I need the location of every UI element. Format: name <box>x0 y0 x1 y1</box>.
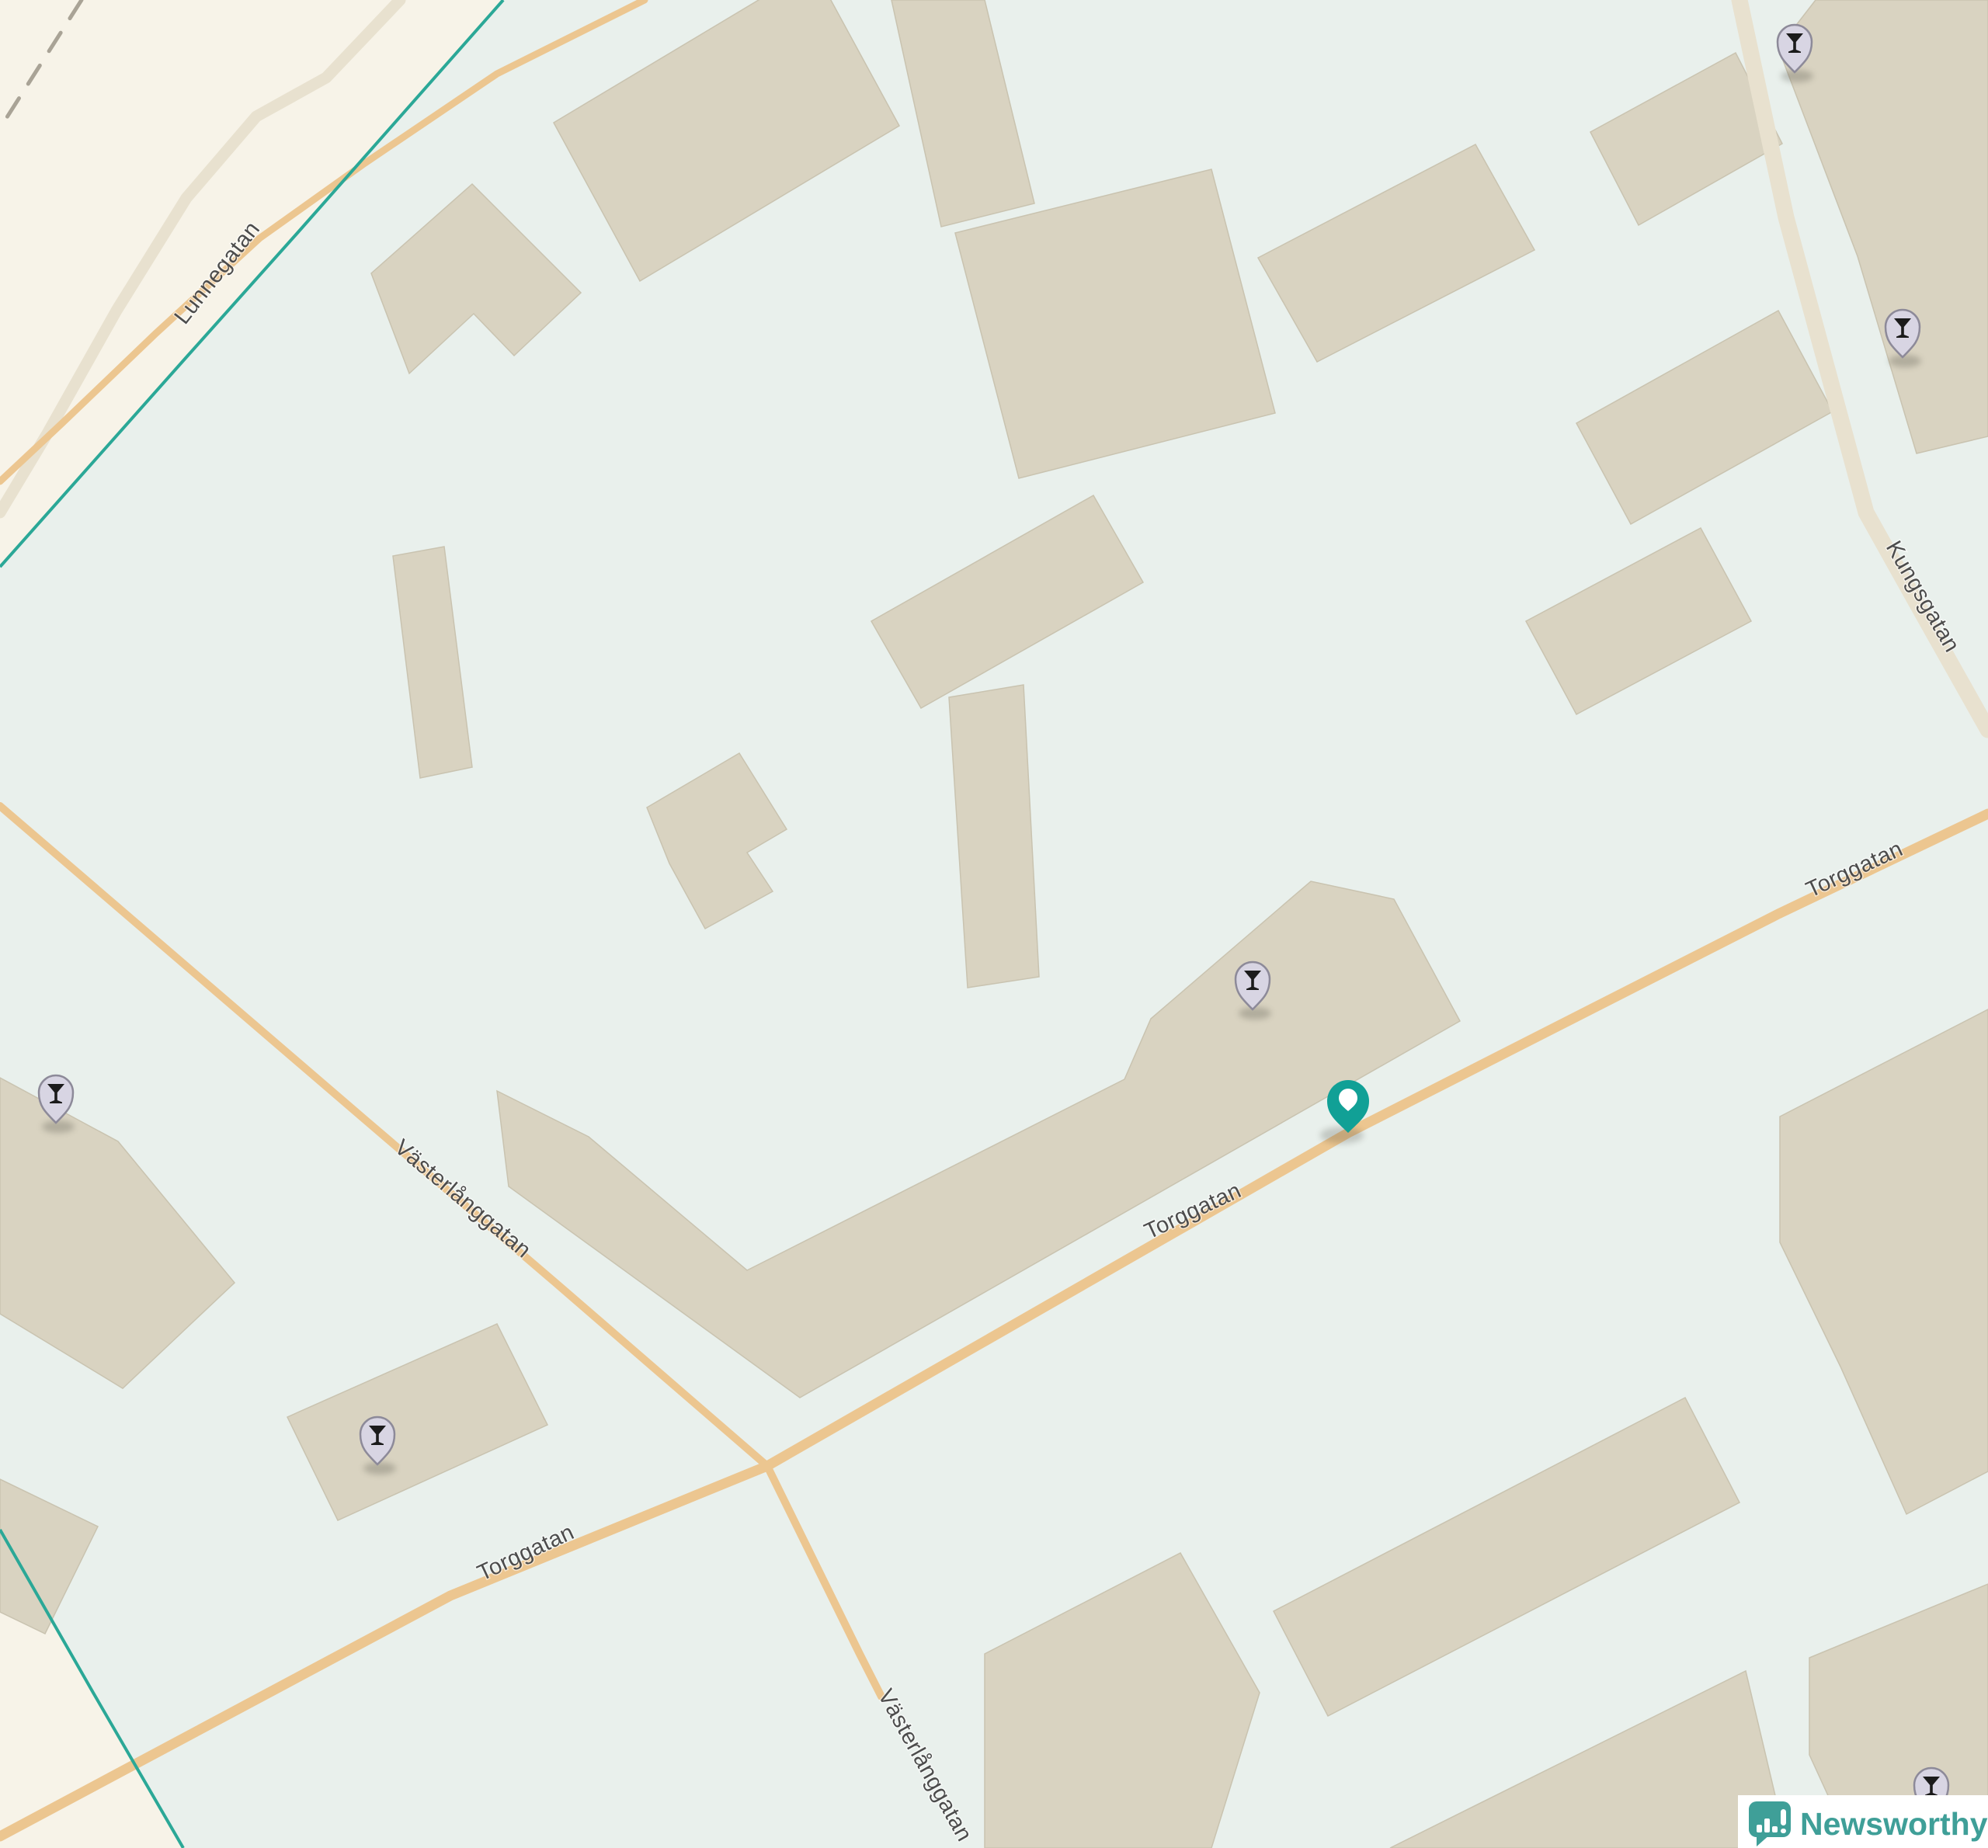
bar-poi-marker[interactable] <box>360 1417 396 1475</box>
newsworthy-logo-text: Newsworthy <box>1800 1806 1988 1842</box>
bar-poi-marker[interactable] <box>1236 962 1271 1020</box>
newsworthy-logo[interactable]: Newsworthy <box>1738 1795 1988 1848</box>
map-viewport[interactable]: Lunnegatan Kungsgatan Torggatan Torggata… <box>0 0 1988 1848</box>
bar-poi-marker[interactable] <box>1885 310 1921 367</box>
bar-poi-marker[interactable] <box>39 1075 75 1133</box>
bar-poi-marker[interactable] <box>1778 25 1813 82</box>
map-canvas[interactable]: Lunnegatan Kungsgatan Torggatan Torggata… <box>0 0 1988 1848</box>
